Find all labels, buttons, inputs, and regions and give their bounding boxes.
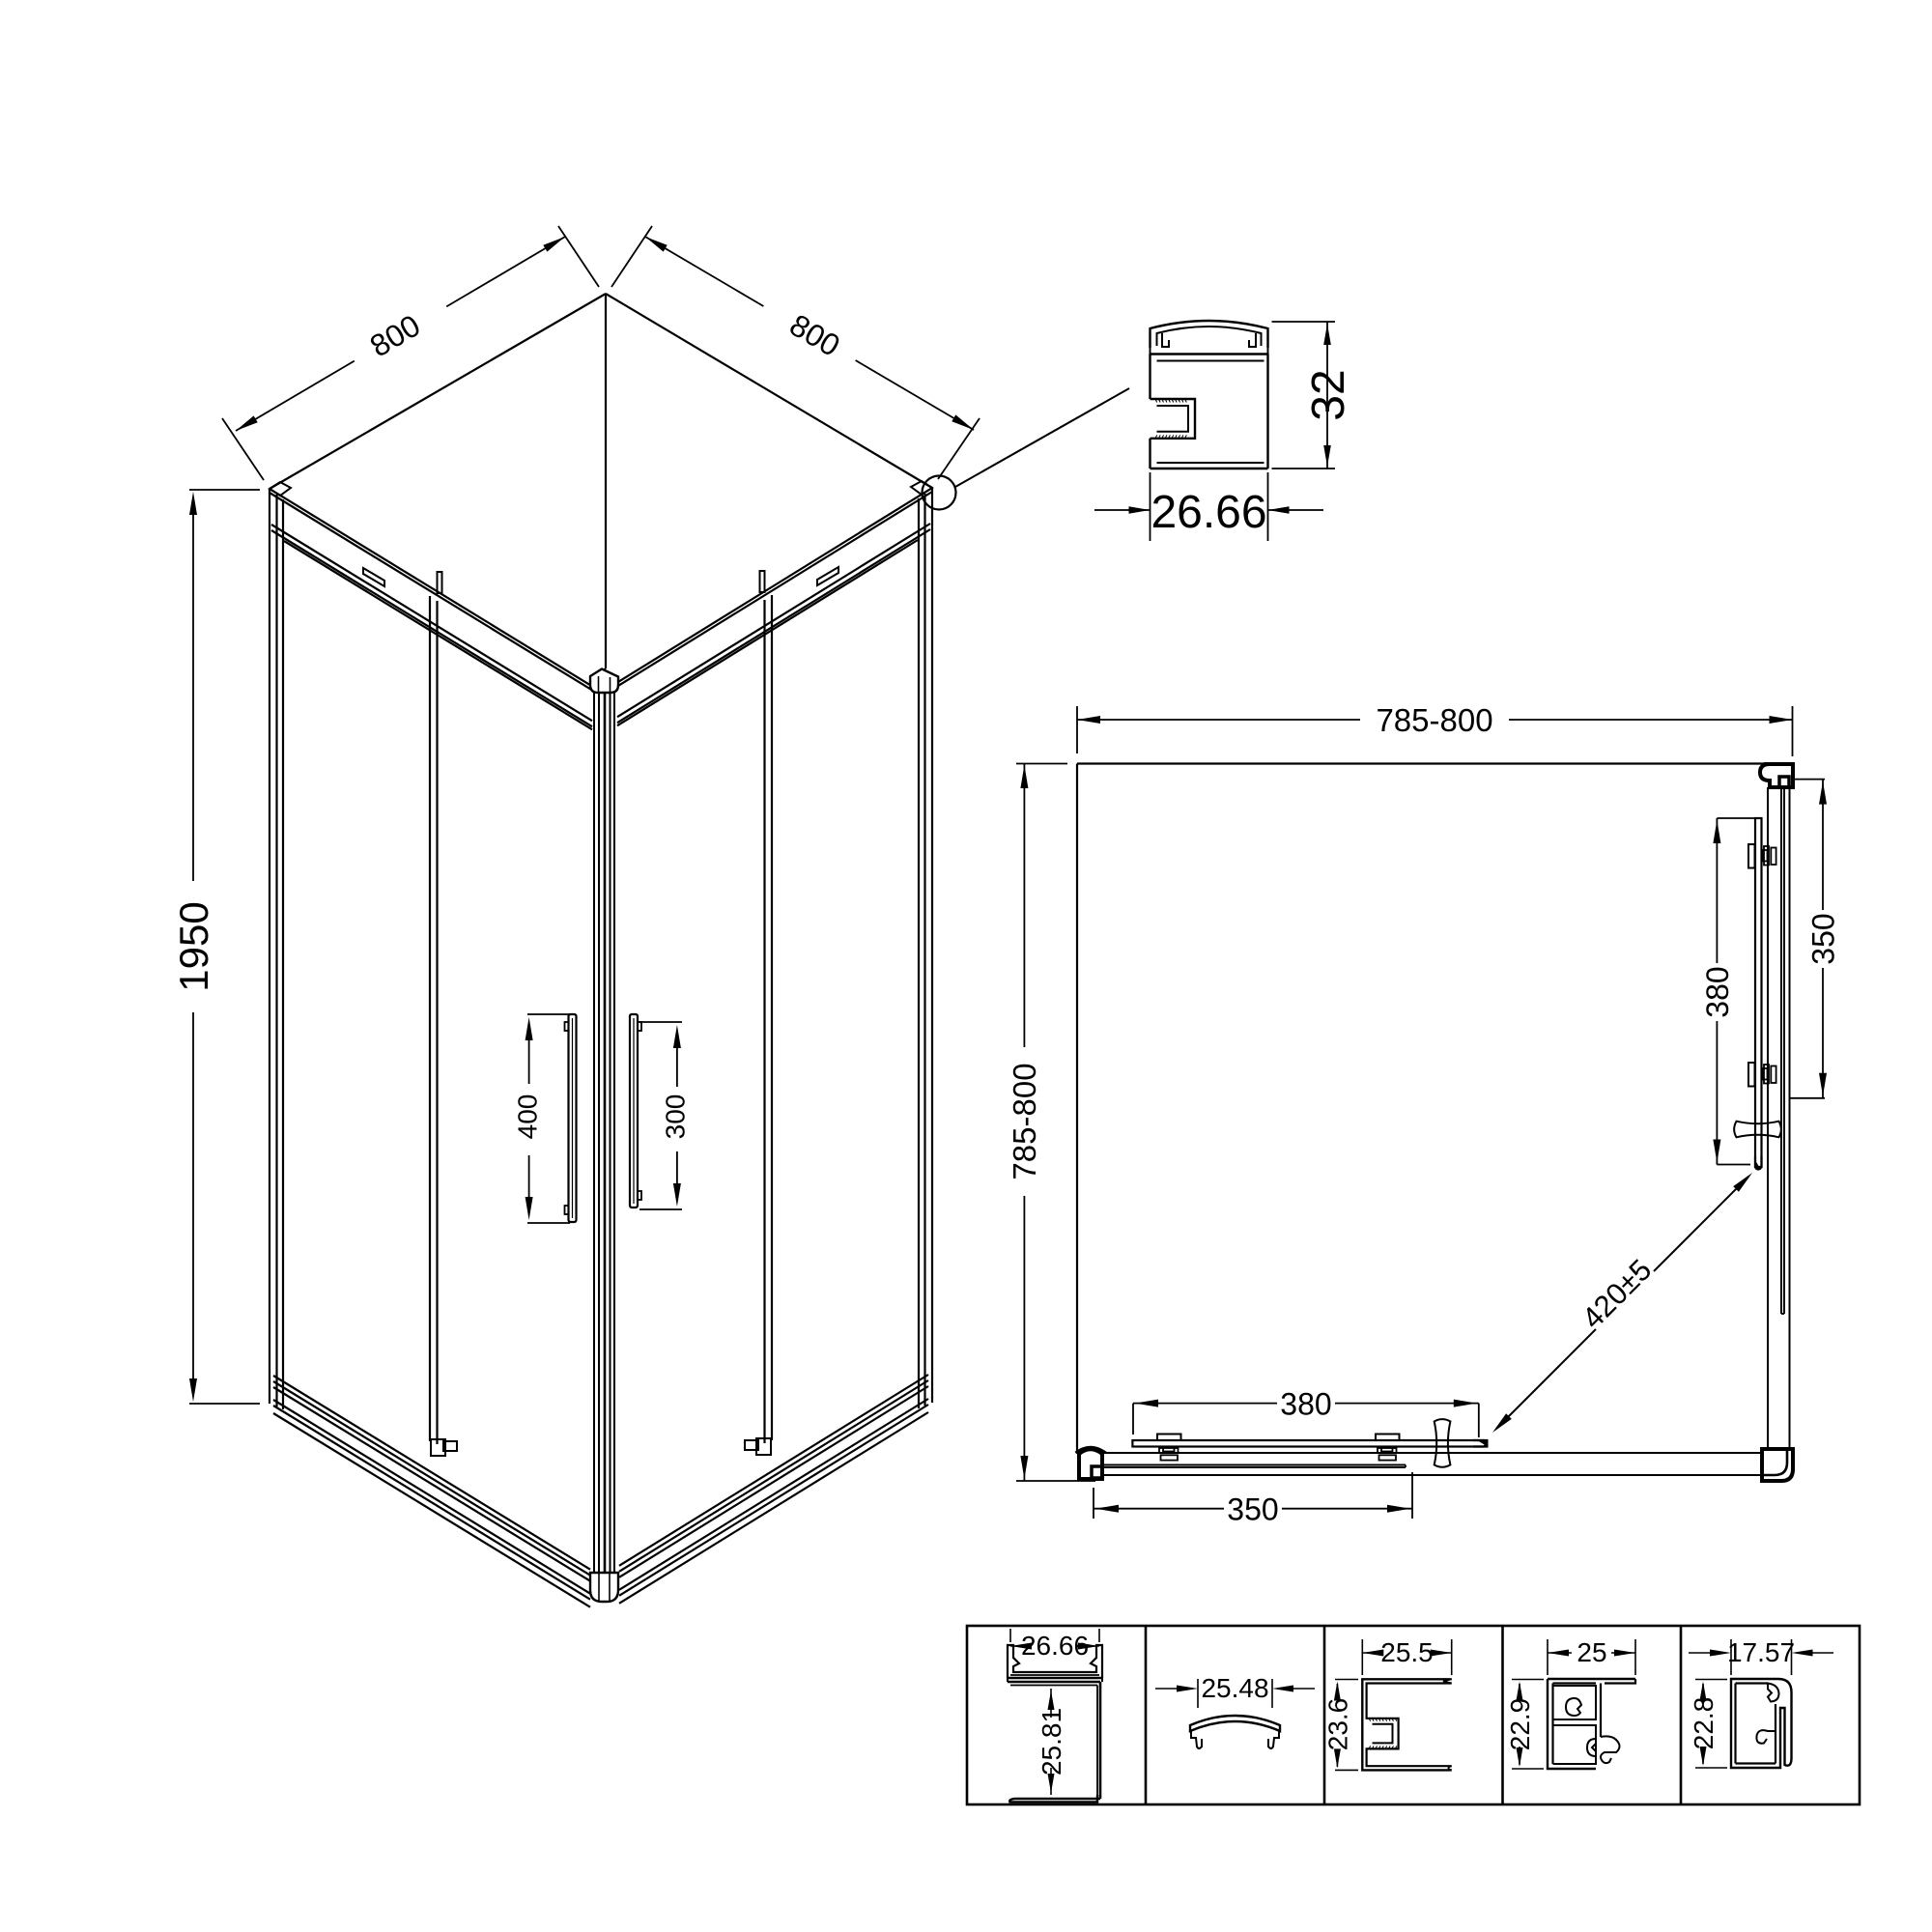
svg-text:23.6: 23.6 bbox=[1323, 1698, 1353, 1751]
svg-text:25.81: 25.81 bbox=[1037, 1708, 1066, 1776]
svg-text:1950: 1950 bbox=[171, 901, 216, 991]
svg-text:350: 350 bbox=[1227, 1492, 1278, 1527]
svg-text:17.57: 17.57 bbox=[1727, 1637, 1795, 1667]
svg-text:25.48: 25.48 bbox=[1201, 1673, 1268, 1703]
svg-text:300: 300 bbox=[661, 1094, 691, 1140]
svg-text:785-800: 785-800 bbox=[1007, 1063, 1042, 1179]
svg-text:26.66: 26.66 bbox=[1021, 1631, 1089, 1661]
svg-text:32: 32 bbox=[1303, 369, 1354, 420]
svg-text:785-800: 785-800 bbox=[1376, 702, 1492, 738]
svg-text:25.5: 25.5 bbox=[1380, 1637, 1434, 1667]
svg-text:380: 380 bbox=[1280, 1387, 1331, 1422]
svg-text:22.9: 22.9 bbox=[1505, 1698, 1535, 1751]
svg-text:400: 400 bbox=[513, 1094, 543, 1140]
svg-text:26.66: 26.66 bbox=[1151, 487, 1266, 538]
svg-text:380: 380 bbox=[1700, 966, 1735, 1017]
svg-text:350: 350 bbox=[1806, 913, 1841, 964]
svg-text:22.8: 22.8 bbox=[1689, 1697, 1719, 1750]
svg-text:25: 25 bbox=[1577, 1637, 1606, 1667]
